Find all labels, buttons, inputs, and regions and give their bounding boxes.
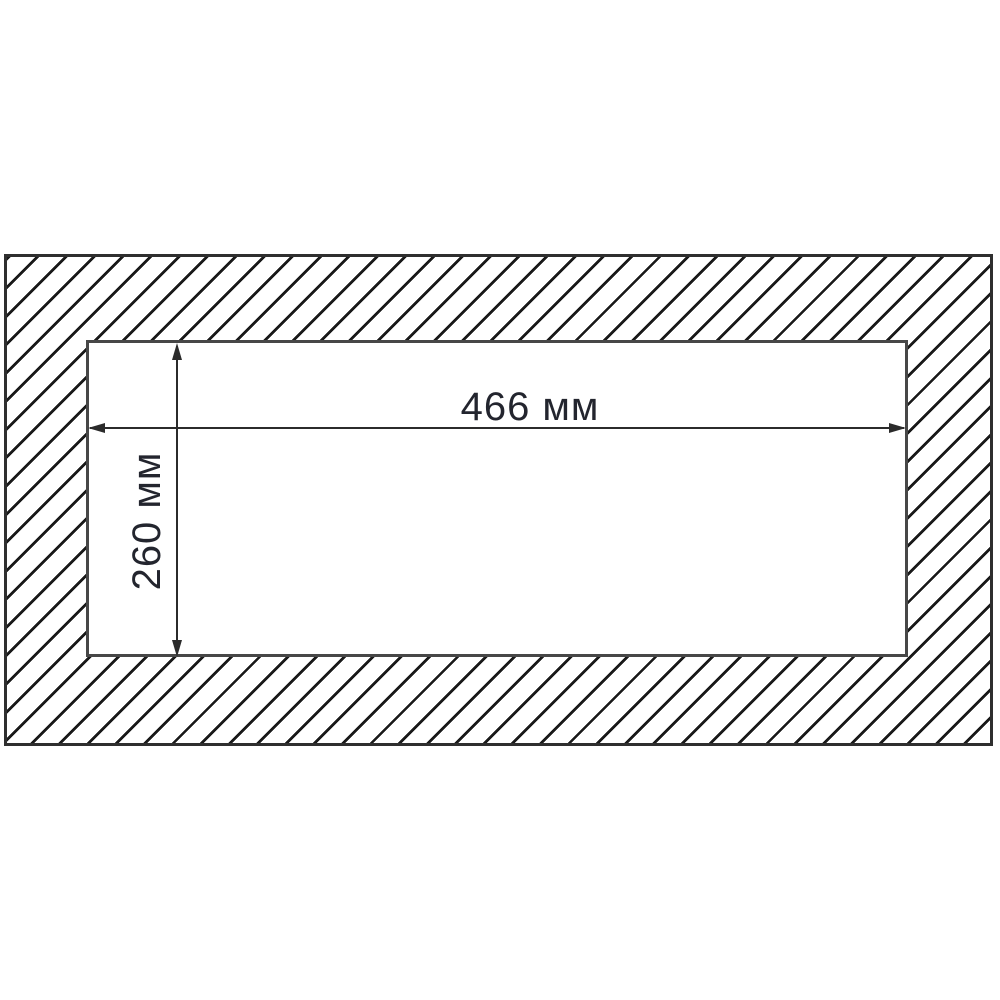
arrow-left-icon xyxy=(88,423,105,433)
arrow-up-icon xyxy=(172,343,182,360)
arrow-right-icon xyxy=(889,423,906,433)
cutout-diagram: 466 мм 260 мм xyxy=(0,0,1000,1000)
width-dimension-label: 466 мм xyxy=(461,387,600,427)
arrow-down-icon xyxy=(172,640,182,657)
height-dimension-label: 260 мм xyxy=(127,452,167,591)
height-dimension-line xyxy=(176,346,178,652)
